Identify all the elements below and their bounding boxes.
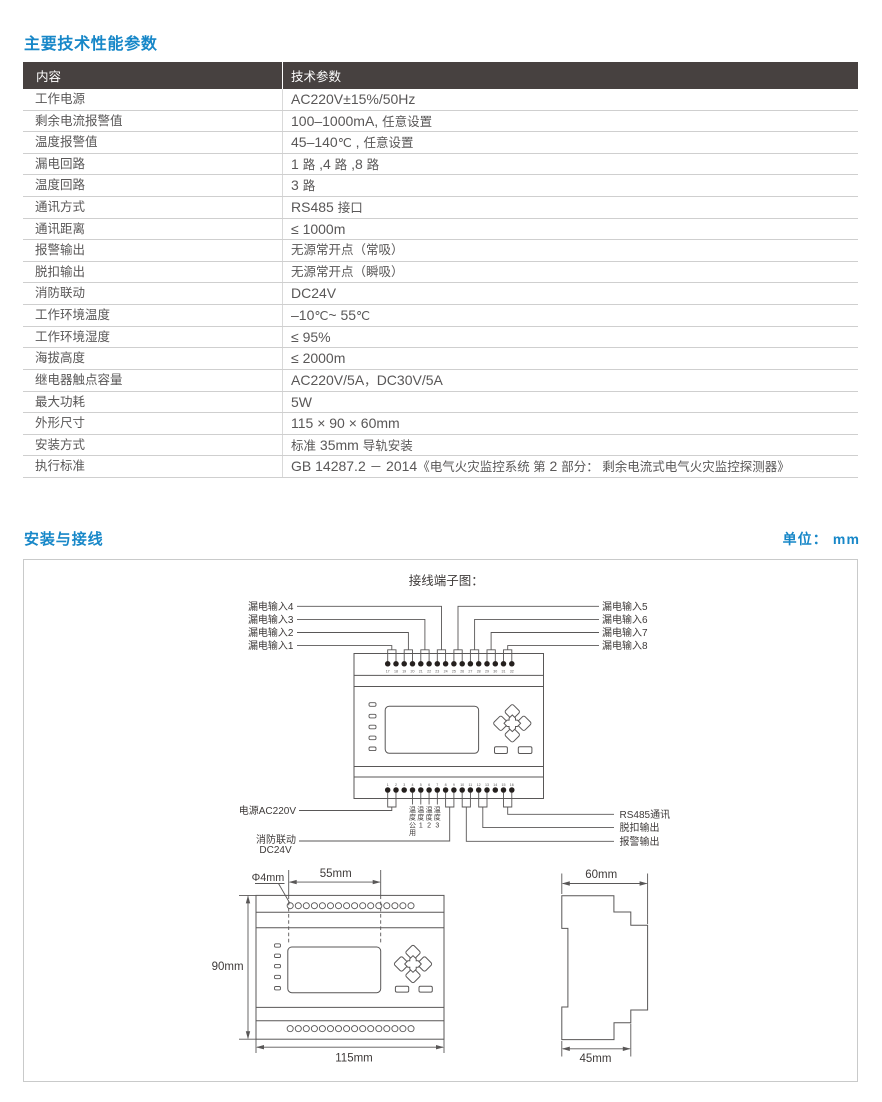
- svg-text:13: 13: [485, 783, 489, 787]
- svg-text:脱扣输出: 脱扣输出: [620, 821, 660, 834]
- svg-text:20: 20: [411, 669, 415, 673]
- svg-text:电源AC220V: 电源AC220V: [239, 804, 297, 817]
- svg-text:14: 14: [493, 783, 497, 787]
- svg-text:90mm: 90mm: [212, 961, 244, 973]
- svg-text:32: 32: [510, 669, 514, 673]
- svg-text:温: 温: [417, 805, 424, 814]
- svg-text:度: 度: [417, 813, 424, 822]
- svg-text:30: 30: [493, 669, 497, 673]
- svg-text:温: 温: [426, 805, 433, 814]
- svg-text:漏电输入7: 漏电输入7: [602, 626, 648, 639]
- svg-text:公: 公: [409, 821, 416, 829]
- svg-text:115mm: 115mm: [335, 1053, 373, 1065]
- svg-text:29: 29: [485, 669, 489, 673]
- svg-text:4: 4: [412, 783, 414, 787]
- svg-text:24: 24: [444, 669, 448, 673]
- svg-text:31: 31: [502, 669, 506, 673]
- svg-text:漏电输入4: 漏电输入4: [248, 600, 294, 613]
- svg-text:漏电输入3: 漏电输入3: [248, 613, 294, 626]
- svg-text:15: 15: [502, 783, 506, 787]
- svg-text:3: 3: [403, 783, 405, 787]
- svg-text:Φ4mm: Φ4mm: [252, 872, 285, 884]
- svg-text:60mm: 60mm: [585, 869, 617, 881]
- svg-text:RS485通讯: RS485通讯: [620, 809, 671, 821]
- svg-text:11: 11: [469, 783, 473, 787]
- svg-text:26: 26: [460, 669, 464, 673]
- svg-text:19: 19: [402, 669, 406, 673]
- svg-text:55mm: 55mm: [320, 868, 352, 880]
- svg-text:2: 2: [395, 783, 397, 787]
- svg-text:DC24V: DC24V: [259, 845, 292, 856]
- svg-text:接线端子图：: 接线端子图：: [409, 573, 484, 588]
- svg-text:18: 18: [394, 669, 398, 673]
- svg-text:2: 2: [427, 822, 431, 829]
- svg-text:45mm: 45mm: [580, 1053, 612, 1065]
- svg-text:漏电输入1: 漏电输入1: [248, 639, 294, 652]
- svg-text:漏电输入8: 漏电输入8: [602, 639, 648, 652]
- svg-text:28: 28: [477, 669, 481, 673]
- svg-text:10: 10: [460, 783, 464, 787]
- svg-text:度: 度: [409, 813, 416, 822]
- svg-text:用: 用: [409, 829, 416, 837]
- svg-text:温: 温: [409, 805, 416, 814]
- svg-text:22: 22: [427, 669, 431, 673]
- svg-text:度: 度: [426, 813, 433, 822]
- svg-text:8: 8: [445, 783, 447, 787]
- svg-text:9: 9: [453, 783, 455, 787]
- svg-text:漏电输入6: 漏电输入6: [602, 613, 648, 626]
- svg-text:漏电输入2: 漏电输入2: [248, 626, 294, 639]
- svg-text:报警输出: 报警输出: [620, 835, 660, 848]
- svg-text:21: 21: [419, 669, 423, 673]
- svg-text:27: 27: [468, 669, 472, 673]
- svg-text:1: 1: [387, 783, 389, 787]
- svg-text:7: 7: [436, 783, 438, 787]
- svg-text:度: 度: [434, 813, 441, 822]
- svg-text:1: 1: [419, 822, 423, 829]
- svg-text:温: 温: [434, 805, 441, 814]
- svg-text:23: 23: [435, 669, 439, 673]
- svg-text:16: 16: [510, 783, 514, 787]
- svg-text:12: 12: [477, 783, 481, 787]
- svg-text:17: 17: [386, 669, 390, 673]
- svg-text:消防联动: 消防联动: [256, 833, 296, 846]
- svg-text:漏电输入5: 漏电输入5: [602, 600, 648, 613]
- svg-text:5: 5: [420, 783, 422, 787]
- svg-text:6: 6: [428, 783, 430, 787]
- svg-text:25: 25: [452, 669, 456, 673]
- svg-text:3: 3: [435, 822, 439, 829]
